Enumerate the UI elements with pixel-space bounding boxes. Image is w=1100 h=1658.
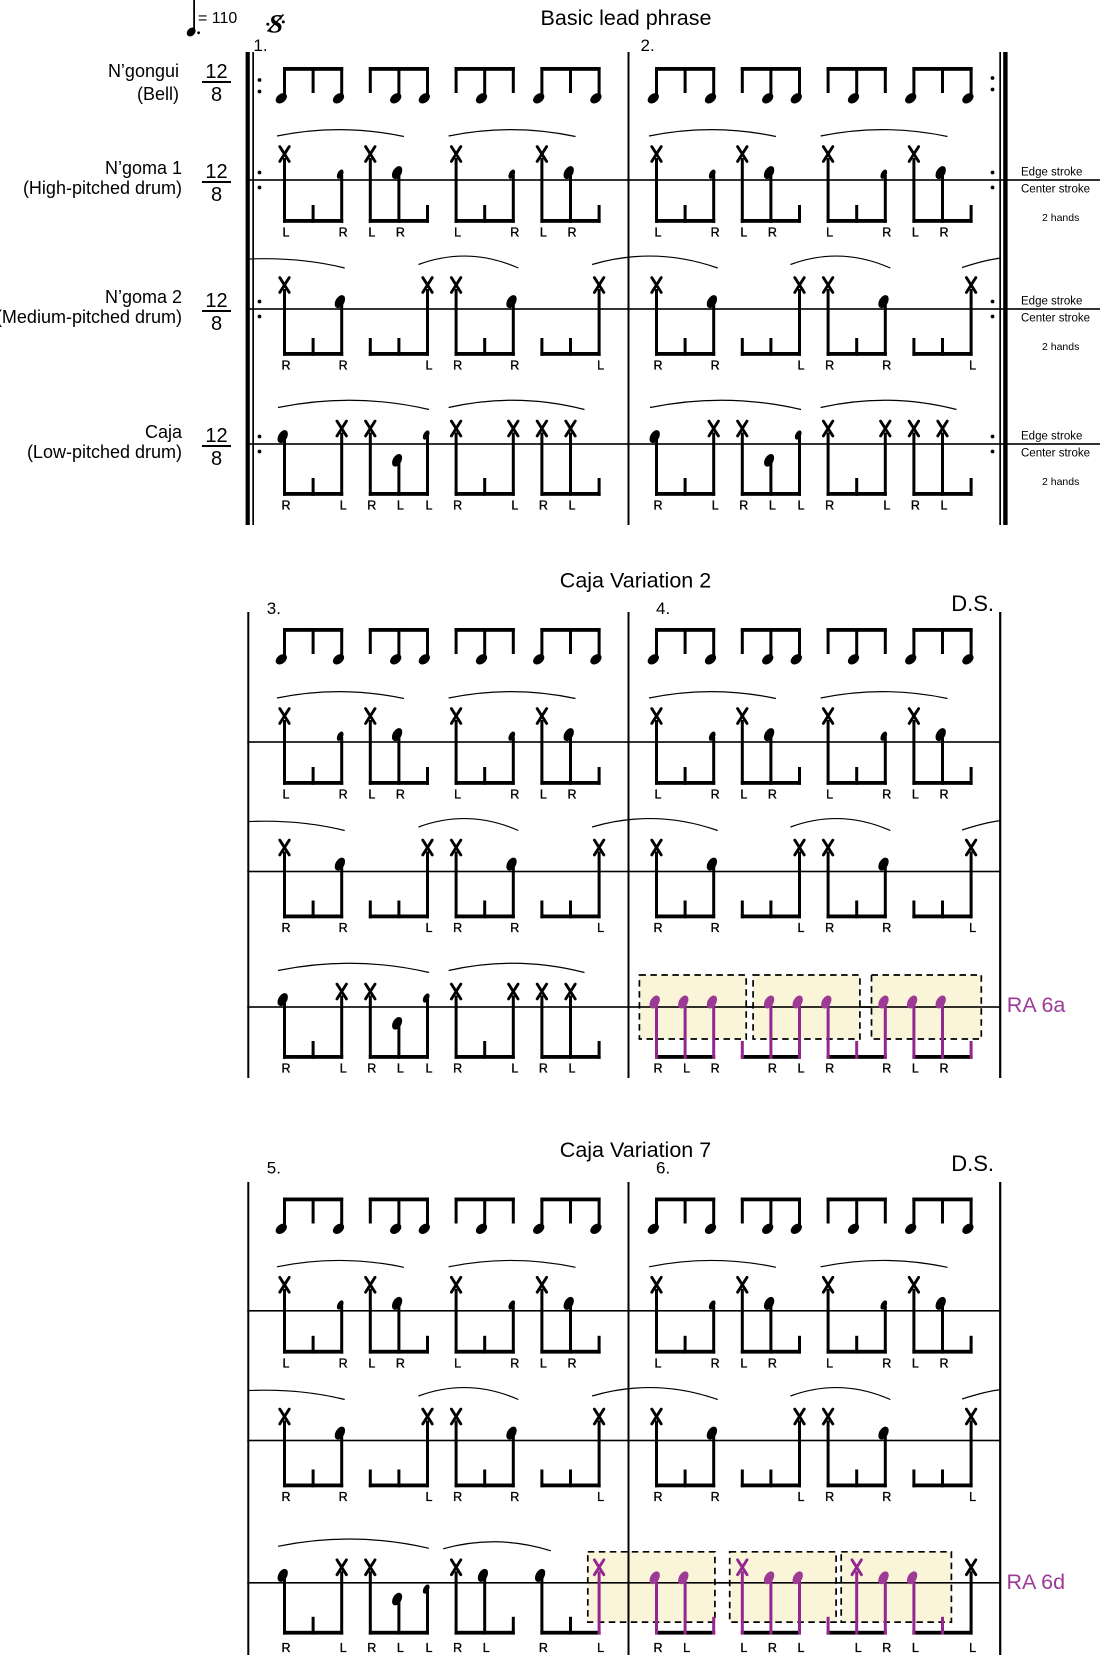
- svg-text:L: L: [798, 921, 805, 935]
- svg-text:L: L: [426, 1062, 433, 1076]
- svg-text:R: R: [882, 1356, 891, 1370]
- svg-text:R: R: [825, 499, 834, 513]
- svg-text:L: L: [798, 1490, 805, 1504]
- svg-text:8: 8: [211, 313, 222, 335]
- svg-text:L: L: [283, 788, 290, 802]
- svg-text:L: L: [769, 499, 776, 513]
- svg-text:R: R: [510, 788, 519, 802]
- svg-text:R: R: [768, 1062, 777, 1076]
- svg-text:4.: 4.: [656, 599, 670, 618]
- svg-text:Basic lead phrase: Basic lead phrase: [541, 6, 712, 30]
- svg-text:N’goma 2: N’goma 2: [105, 287, 182, 307]
- svg-text:L: L: [540, 788, 547, 802]
- svg-text:R: R: [825, 359, 834, 373]
- svg-text:L: L: [826, 226, 833, 240]
- svg-text:R: R: [768, 226, 777, 240]
- svg-text:L: L: [426, 499, 433, 513]
- svg-text:12: 12: [205, 290, 227, 312]
- svg-text:R: R: [882, 1490, 891, 1504]
- svg-text:L: L: [397, 1062, 404, 1076]
- svg-text:L: L: [340, 499, 347, 513]
- svg-text:L: L: [511, 499, 518, 513]
- svg-text:Center stroke: Center stroke: [1021, 184, 1090, 196]
- svg-text:R: R: [882, 1062, 891, 1076]
- svg-text:R: R: [510, 226, 519, 240]
- svg-text:R: R: [711, 226, 720, 240]
- svg-text:L: L: [740, 788, 747, 802]
- svg-text:R: R: [567, 788, 576, 802]
- svg-text:R: R: [653, 1490, 662, 1504]
- svg-text:L: L: [454, 226, 461, 240]
- svg-text:L: L: [597, 1641, 604, 1655]
- svg-text:L: L: [283, 226, 290, 240]
- svg-text:2 hands: 2 hands: [1042, 341, 1079, 353]
- svg-text:R: R: [711, 1062, 720, 1076]
- svg-text:L: L: [397, 499, 404, 513]
- svg-text:Center stroke: Center stroke: [1021, 448, 1090, 460]
- svg-text:L: L: [826, 1356, 833, 1370]
- svg-text:R: R: [453, 1641, 462, 1655]
- svg-text:R: R: [653, 359, 662, 373]
- svg-text:R: R: [653, 1641, 662, 1655]
- svg-text:R: R: [882, 788, 891, 802]
- svg-text:R: R: [825, 1062, 834, 1076]
- svg-text:N’gongui: N’gongui: [108, 61, 179, 81]
- svg-text:Caja: Caja: [145, 422, 183, 442]
- svg-text:L: L: [912, 788, 919, 802]
- svg-text:R: R: [653, 499, 662, 513]
- svg-text:D.S.: D.S.: [951, 1151, 994, 1176]
- svg-text:R: R: [939, 1356, 948, 1370]
- svg-text:R: R: [453, 1490, 462, 1504]
- svg-text:R: R: [567, 1356, 576, 1370]
- svg-text:S: S: [269, 10, 283, 39]
- svg-text:L: L: [454, 788, 461, 802]
- svg-text:L: L: [912, 1641, 919, 1655]
- svg-text:R: R: [539, 499, 548, 513]
- svg-text:R: R: [711, 788, 720, 802]
- svg-text:(Bell): (Bell): [137, 84, 179, 104]
- svg-text:L: L: [569, 1062, 576, 1076]
- svg-text:L: L: [740, 226, 747, 240]
- svg-text:L: L: [483, 1641, 490, 1655]
- svg-text:L: L: [941, 499, 948, 513]
- svg-text:L: L: [969, 359, 976, 373]
- svg-text:R: R: [281, 1062, 290, 1076]
- svg-text:RA 6a: RA 6a: [1007, 993, 1066, 1017]
- svg-text:L: L: [826, 788, 833, 802]
- svg-text:R: R: [510, 1356, 519, 1370]
- svg-text:L: L: [740, 1641, 747, 1655]
- svg-text:L: L: [426, 1490, 433, 1504]
- svg-text:6.: 6.: [656, 1159, 670, 1178]
- svg-text:R: R: [339, 788, 348, 802]
- svg-text:R: R: [653, 921, 662, 935]
- svg-text:R: R: [711, 1356, 720, 1370]
- svg-text:R: R: [711, 1490, 720, 1504]
- svg-text:R: R: [539, 1062, 548, 1076]
- svg-text:R: R: [367, 1062, 376, 1076]
- svg-text:2 hands: 2 hands: [1042, 212, 1079, 224]
- svg-text:R: R: [339, 1490, 348, 1504]
- svg-text:L: L: [597, 359, 604, 373]
- svg-text:R: R: [510, 921, 519, 935]
- svg-text:L: L: [368, 226, 375, 240]
- svg-text:(Medium-pitched drum): (Medium-pitched drum): [0, 307, 182, 327]
- svg-text:L: L: [283, 1356, 290, 1370]
- svg-text:L: L: [855, 1641, 862, 1655]
- svg-text:R: R: [739, 499, 748, 513]
- svg-text:Caja Variation 7: Caja Variation 7: [560, 1138, 711, 1162]
- svg-text:L: L: [540, 1356, 547, 1370]
- svg-text:R: R: [939, 788, 948, 802]
- svg-text:8: 8: [211, 84, 222, 106]
- svg-text:R: R: [882, 226, 891, 240]
- svg-text:(High-pitched drum): (High-pitched drum): [23, 178, 182, 198]
- svg-text:L: L: [426, 1641, 433, 1655]
- svg-text:L: L: [655, 788, 662, 802]
- svg-text:R: R: [453, 359, 462, 373]
- svg-text:L: L: [597, 921, 604, 935]
- svg-text:L: L: [655, 1356, 662, 1370]
- svg-text:R: R: [453, 499, 462, 513]
- svg-text:2.: 2.: [641, 36, 655, 55]
- svg-text:R: R: [825, 1490, 834, 1504]
- svg-text:L: L: [368, 1356, 375, 1370]
- svg-text:8: 8: [211, 184, 222, 206]
- svg-text:L: L: [912, 1356, 919, 1370]
- svg-text:1.: 1.: [253, 36, 267, 55]
- svg-text:2 hands: 2 hands: [1042, 476, 1079, 488]
- svg-text:Center stroke: Center stroke: [1021, 313, 1090, 325]
- svg-text:R: R: [339, 1356, 348, 1370]
- svg-text:R: R: [396, 226, 405, 240]
- svg-text:D.S.: D.S.: [951, 591, 994, 616]
- svg-text:L: L: [540, 226, 547, 240]
- svg-text:R: R: [510, 1490, 519, 1504]
- svg-text:12: 12: [205, 425, 227, 447]
- svg-text:R: R: [339, 921, 348, 935]
- svg-text:L: L: [798, 1641, 805, 1655]
- svg-text:R: R: [339, 226, 348, 240]
- svg-text:L: L: [397, 1641, 404, 1655]
- svg-text:= 110: = 110: [198, 10, 237, 27]
- svg-text:Edge stroke: Edge stroke: [1021, 431, 1082, 443]
- svg-text:R: R: [453, 1062, 462, 1076]
- svg-text:R: R: [510, 359, 519, 373]
- svg-text:R: R: [939, 1062, 948, 1076]
- svg-text:5.: 5.: [267, 1159, 281, 1178]
- svg-text:R: R: [882, 359, 891, 373]
- svg-text:R: R: [281, 921, 290, 935]
- svg-text:L: L: [511, 1062, 518, 1076]
- svg-text:L: L: [683, 1062, 690, 1076]
- svg-text:L: L: [426, 921, 433, 935]
- svg-text:R: R: [367, 499, 376, 513]
- svg-text:Edge stroke: Edge stroke: [1021, 167, 1082, 179]
- svg-text:R: R: [768, 1356, 777, 1370]
- svg-text:L: L: [798, 499, 805, 513]
- svg-text:L: L: [969, 1490, 976, 1504]
- svg-text:R: R: [281, 1490, 290, 1504]
- svg-text:R: R: [281, 499, 290, 513]
- svg-text:R: R: [882, 921, 891, 935]
- svg-text:R: R: [711, 359, 720, 373]
- svg-text:R: R: [768, 1641, 777, 1655]
- svg-text:Edge stroke: Edge stroke: [1021, 296, 1082, 308]
- svg-text:R: R: [539, 1641, 548, 1655]
- svg-text:L: L: [969, 921, 976, 935]
- svg-text:R: R: [396, 1356, 405, 1370]
- svg-text:R: R: [339, 359, 348, 373]
- svg-text:R: R: [367, 1641, 376, 1655]
- svg-text:3.: 3.: [267, 599, 281, 618]
- svg-text:RA 6d: RA 6d: [1007, 1570, 1066, 1594]
- svg-text:L: L: [569, 499, 576, 513]
- svg-text:N’goma 1: N’goma 1: [105, 158, 182, 178]
- svg-text:R: R: [653, 1062, 662, 1076]
- svg-text:R: R: [281, 359, 290, 373]
- svg-text:R: R: [825, 921, 834, 935]
- svg-text:R: R: [453, 921, 462, 935]
- svg-text:R: R: [567, 226, 576, 240]
- svg-text:L: L: [969, 1641, 976, 1655]
- svg-text:R: R: [711, 921, 720, 935]
- svg-text:L: L: [426, 359, 433, 373]
- svg-text:L: L: [655, 226, 662, 240]
- svg-text:L: L: [798, 359, 805, 373]
- svg-text:Caja Variation 2: Caja Variation 2: [560, 569, 711, 593]
- svg-text:L: L: [883, 499, 890, 513]
- svg-text:L: L: [368, 788, 375, 802]
- svg-text:L: L: [683, 1641, 690, 1655]
- svg-text:L: L: [340, 1641, 347, 1655]
- svg-text:12: 12: [205, 61, 227, 83]
- svg-text:8: 8: [211, 448, 222, 470]
- svg-text:12: 12: [205, 161, 227, 183]
- svg-text:L: L: [912, 226, 919, 240]
- svg-text:R: R: [911, 499, 920, 513]
- svg-text:L: L: [454, 1356, 461, 1370]
- svg-text:L: L: [912, 1062, 919, 1076]
- svg-text:L: L: [740, 1356, 747, 1370]
- svg-text:R: R: [939, 226, 948, 240]
- svg-text:R: R: [396, 788, 405, 802]
- svg-text:R: R: [882, 1641, 891, 1655]
- svg-text:R: R: [768, 788, 777, 802]
- svg-text:L: L: [340, 1062, 347, 1076]
- svg-text:L: L: [597, 1490, 604, 1504]
- svg-text:L: L: [712, 499, 719, 513]
- svg-text:L: L: [798, 1062, 805, 1076]
- svg-text:R: R: [281, 1641, 290, 1655]
- svg-text:(Low-pitched drum): (Low-pitched drum): [27, 442, 182, 462]
